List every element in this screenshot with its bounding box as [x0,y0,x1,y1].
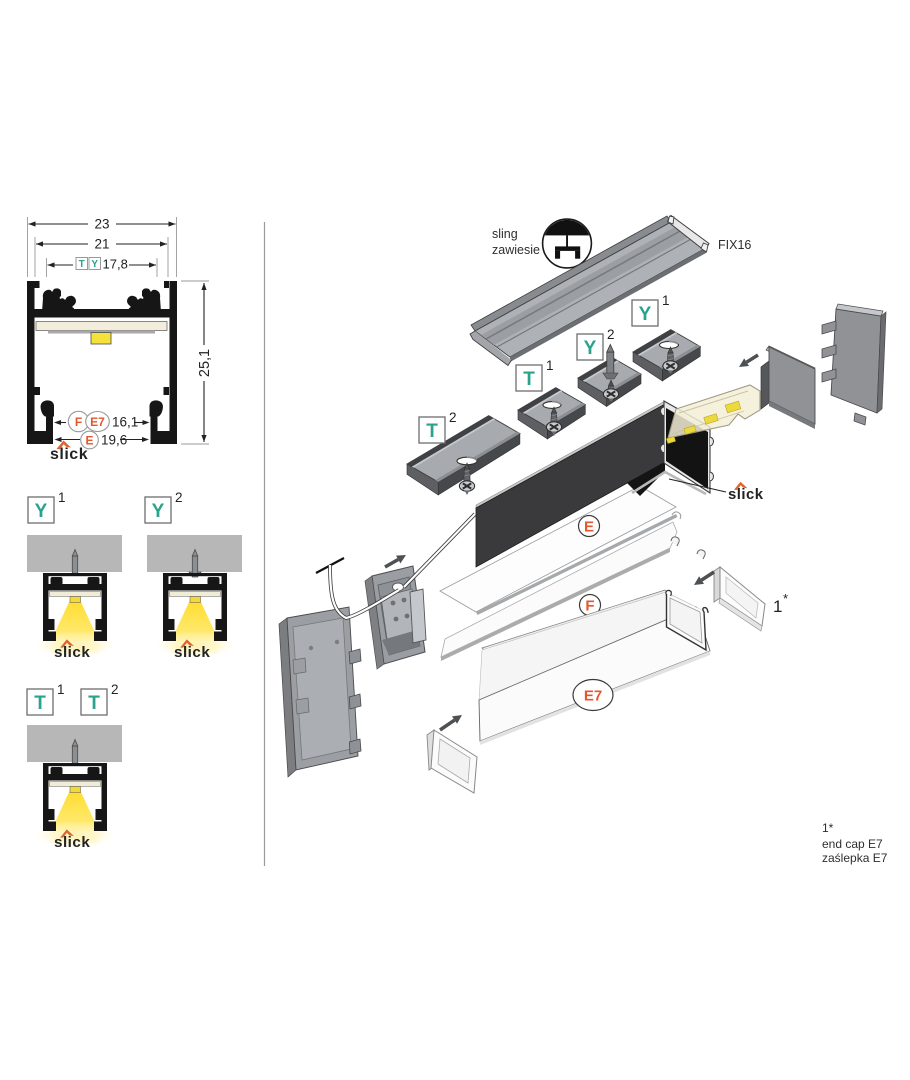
svg-text:Y: Y [639,304,652,325]
svg-text:T: T [523,369,535,390]
svg-text:25,1: 25,1 [197,349,213,377]
svg-text:zawiesie: zawiesie [492,243,540,257]
svg-text:1: 1 [546,358,554,373]
svg-text:23: 23 [94,217,109,232]
svg-text:Y: Y [35,501,48,522]
svg-text:T: T [426,421,438,442]
svg-text:slick: slick [54,644,90,661]
svg-text:sling: sling [492,227,518,241]
svg-text:slick: slick [174,644,210,661]
svg-text:FIX16: FIX16 [718,238,751,252]
svg-text:F: F [75,415,82,429]
svg-text:zaślepka E7: zaślepka E7 [822,851,888,865]
svg-text:1: 1 [57,682,65,697]
svg-text:1*: 1* [822,821,834,835]
svg-text:E: E [584,519,594,536]
svg-text:T: T [34,693,46,714]
svg-text:17,8: 17,8 [103,257,128,272]
svg-text:end cap E7: end cap E7 [822,837,883,851]
svg-text:*: * [783,591,788,606]
svg-text:2: 2 [111,682,119,697]
svg-text:Y: Y [91,259,98,270]
svg-text:T: T [79,259,85,270]
svg-text:slick: slick [728,487,764,503]
svg-text:E7: E7 [584,688,602,705]
svg-text:F: F [585,598,594,615]
svg-text:19,6: 19,6 [101,433,127,448]
svg-text:1: 1 [662,293,670,308]
svg-text:2: 2 [607,327,615,342]
svg-text:Y: Y [152,501,165,522]
svg-text:Y: Y [584,338,597,359]
svg-text:2: 2 [449,410,457,425]
svg-text:E7: E7 [90,415,105,429]
svg-text:1: 1 [58,490,66,505]
svg-text:slick: slick [50,446,88,463]
svg-text:2: 2 [175,490,183,505]
svg-text:16,1: 16,1 [112,415,138,430]
svg-text:1: 1 [773,597,782,616]
svg-text:T: T [88,693,100,714]
svg-text:21: 21 [94,237,109,252]
svg-text:slick: slick [54,834,90,851]
